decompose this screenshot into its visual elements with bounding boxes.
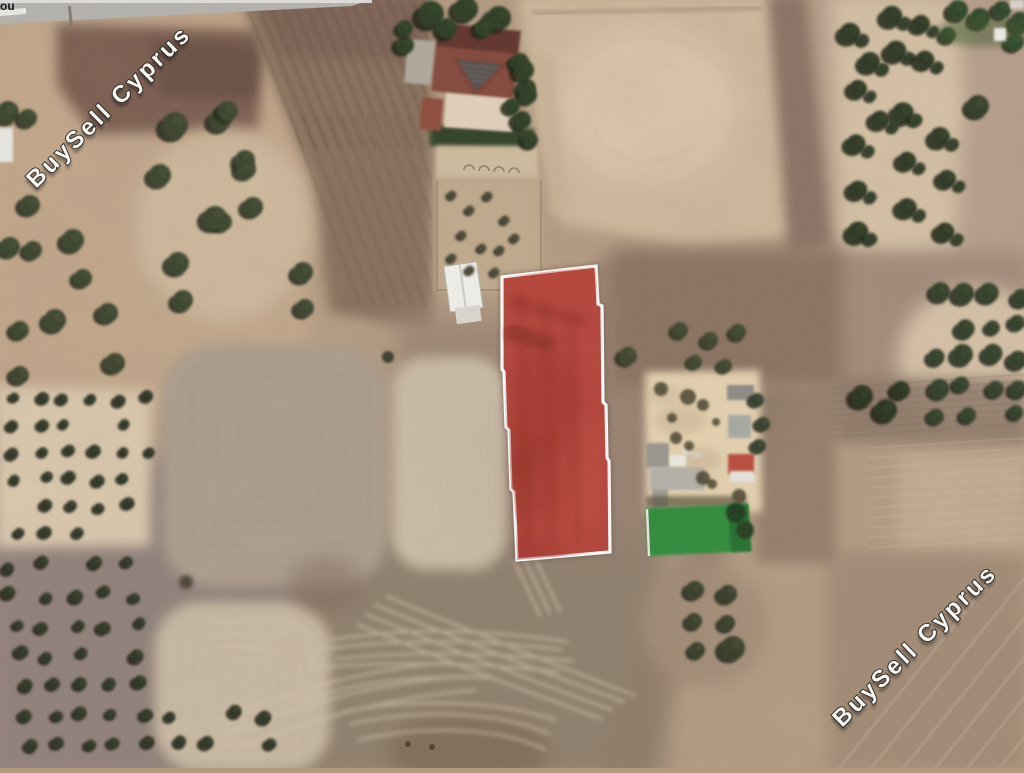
- svg-text:ou: ou: [0, 0, 15, 13]
